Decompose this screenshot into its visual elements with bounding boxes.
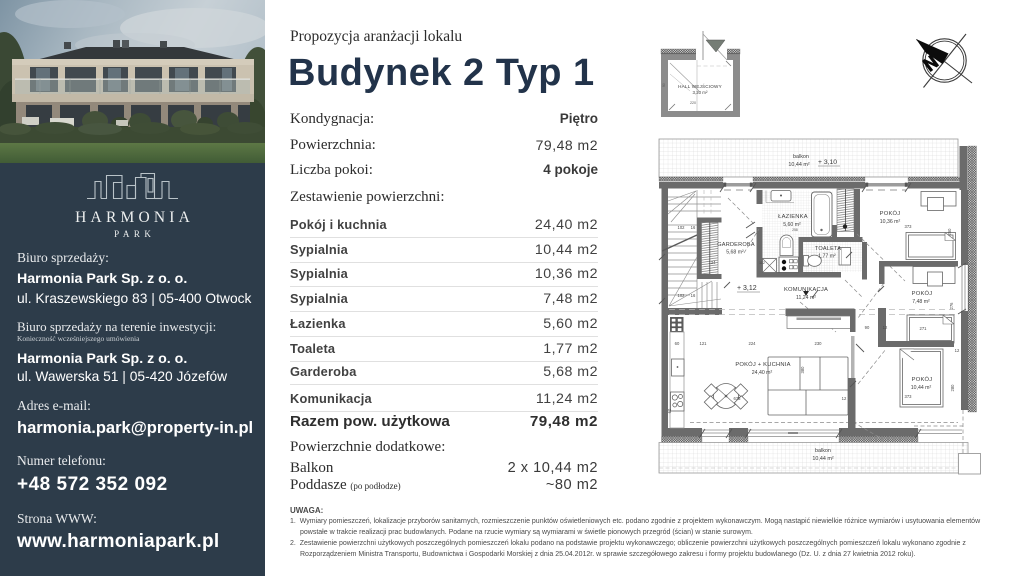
svg-text:TOALETA: TOALETA (815, 246, 841, 252)
svg-text:373: 373 (905, 224, 913, 229)
svg-text:90: 90 (865, 325, 870, 330)
svg-text:+ 3,12: + 3,12 (737, 285, 757, 292)
svg-text:258: 258 (792, 228, 798, 232)
svg-text:102: 102 (678, 293, 686, 298)
svg-text:POKÓJ + KUCHNIA: POKÓJ + KUCHNIA (735, 361, 790, 368)
svg-text:380: 380 (800, 366, 805, 374)
svg-text:373: 373 (905, 394, 913, 399)
svg-text:102: 102 (678, 225, 686, 230)
svg-text:24,40 m²: 24,40 m² (752, 370, 773, 376)
svg-text:balkon: balkon (815, 448, 831, 454)
svg-text:220: 220 (690, 101, 696, 105)
svg-text:12: 12 (955, 348, 960, 353)
svg-text:250: 250 (947, 228, 952, 236)
svg-text:224: 224 (749, 341, 757, 346)
svg-text:124: 124 (709, 260, 717, 265)
svg-text:HALL WEJŚCIOWY: HALL WEJŚCIOWY (678, 82, 722, 89)
svg-text:112: 112 (759, 261, 765, 265)
svg-text:10,36 m²: 10,36 m² (880, 219, 901, 225)
svg-text:POKÓJ: POKÓJ (912, 376, 933, 383)
svg-text:1,77 m²: 1,77 m² (818, 254, 836, 260)
svg-text:280: 280 (950, 384, 955, 392)
svg-text:5,68 m²: 5,68 m² (726, 250, 744, 256)
svg-text:10,44 m²: 10,44 m² (788, 162, 809, 168)
svg-text:230: 230 (815, 341, 823, 346)
svg-text:POKÓJ: POKÓJ (912, 290, 933, 297)
svg-text:12: 12 (883, 325, 888, 330)
svg-text:12: 12 (842, 396, 847, 401)
svg-text:16: 16 (691, 225, 696, 230)
svg-text:7,48 m²: 7,48 m² (912, 299, 930, 305)
svg-text:60: 60 (667, 408, 672, 413)
svg-text:635: 635 (734, 396, 742, 401)
svg-text:90: 90 (662, 83, 666, 87)
svg-text:3,20 m²: 3,20 m² (693, 90, 708, 95)
svg-text:+ 3,10: + 3,10 (818, 159, 837, 166)
svg-text:271: 271 (920, 326, 928, 331)
svg-text:10,44 m²: 10,44 m² (911, 385, 932, 391)
svg-text:276: 276 (949, 302, 954, 310)
svg-text:10,44 m²: 10,44 m² (812, 456, 833, 462)
svg-text:121: 121 (700, 341, 708, 346)
svg-text:POKÓJ: POKÓJ (880, 210, 901, 217)
svg-text:16: 16 (691, 293, 696, 298)
svg-text:60: 60 (675, 341, 680, 346)
svg-text:ŁAZIENKA: ŁAZIENKA (778, 214, 808, 220)
svg-text:balkon: balkon (793, 154, 809, 160)
